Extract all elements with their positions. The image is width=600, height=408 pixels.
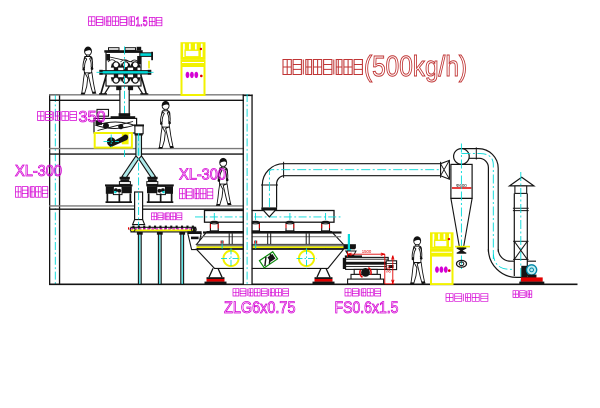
svg-text:ZLG6x0.75: ZLG6x0.75 [224,298,296,317]
svg-text:1.5: 1.5 [136,15,148,29]
svg-text:XL-300: XL-300 [179,167,226,184]
svg-text:1500: 1500 [362,249,372,254]
svg-text:XL-300: XL-300 [15,163,62,180]
svg-text:340: 340 [386,265,392,274]
svg-text:FS0.6x1.5: FS0.6x1.5 [335,298,399,317]
svg-text:350: 350 [79,109,106,126]
svg-text:(500kg/h): (500kg/h) [364,51,467,83]
